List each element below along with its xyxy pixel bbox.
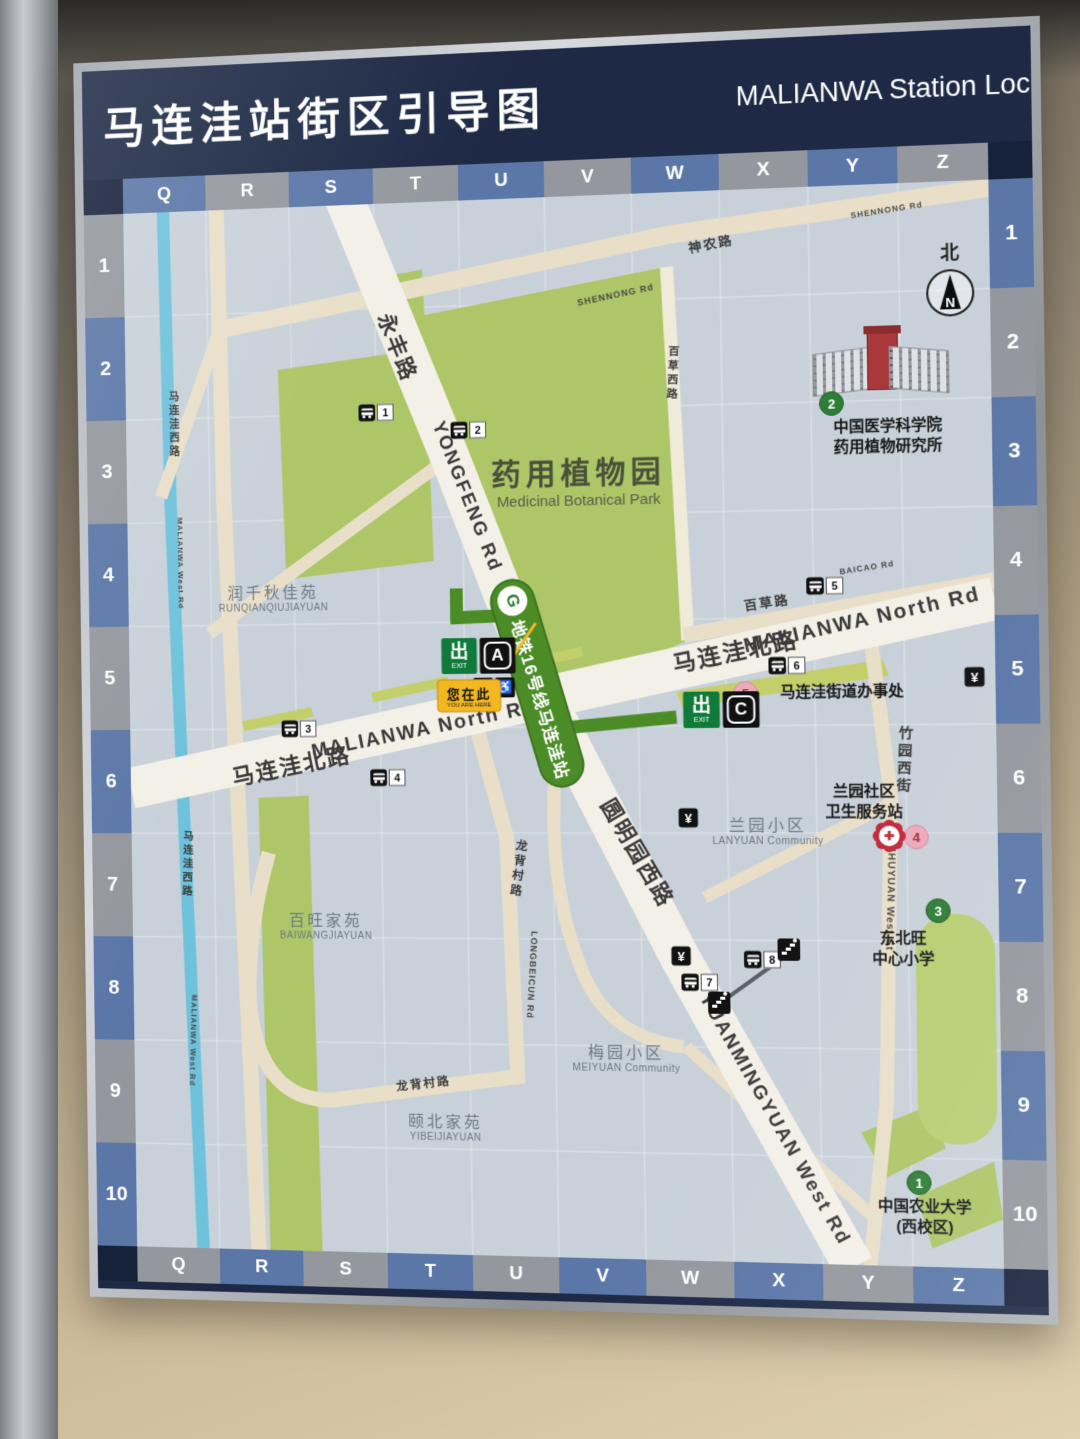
exit-letter-box: A <box>480 637 516 673</box>
poi-label-line: 药用植物研究所 <box>833 435 942 458</box>
bus-stop-icon: 8 <box>744 951 781 968</box>
exit-letter: C <box>727 695 756 724</box>
bus-icon <box>744 951 762 968</box>
bus-stop-icon: 1 <box>358 404 393 422</box>
poi-label: 马连洼街道办事处 <box>780 682 904 704</box>
road-label: 百草路 <box>742 589 790 615</box>
community-label: 兰园小区LANYUAN Community <box>712 811 824 847</box>
poi-label-line: 卫生服务站 <box>825 802 903 823</box>
grid-number-cell: 3 <box>87 420 128 524</box>
stairs-glyph <box>782 952 787 955</box>
poi-label: 兰园社区卫生服务站 <box>825 782 903 823</box>
road-label: MALIANWA West Rd <box>188 994 198 1086</box>
poi-label-line: 兰园社区 <box>825 782 903 803</box>
station-exit-a: 出EXITA▲▼♿ <box>441 637 515 674</box>
road-label: BAICAO Rd <box>839 559 895 577</box>
poi-number-marker: 4 <box>904 825 929 850</box>
beijing-subway-logo-icon: G <box>494 582 531 619</box>
road-label: YUANMINGYUAN West Rd <box>694 990 855 1250</box>
grid-number-cell: 9 <box>95 1039 136 1143</box>
poi-label: 中国农业大学(西校区) <box>878 1196 972 1240</box>
grid-letter-cell: Y <box>807 146 897 186</box>
station-platform-arm-west-end <box>450 588 463 622</box>
building-right-wing <box>889 346 950 393</box>
grid-letter-cell: V <box>544 158 631 198</box>
grid-letter-cell: X <box>734 1262 823 1301</box>
footbridge-icon <box>777 938 800 960</box>
map-overlay: 药用植物园 Medicinal Botanical Park G 地铁16号线 <box>123 180 1004 1269</box>
bus-stop-icon: 5 <box>806 577 843 595</box>
road-label: 百草西路 <box>663 345 681 402</box>
community-name-en: YIBEIJIAYUAN <box>408 1131 483 1143</box>
grid-number-cell: 6 <box>996 724 1042 833</box>
exit-sign: 出EXIT <box>441 638 477 674</box>
station-area-map-sign: 马连洼站街区引导图 MALIANWA Station Loca QRSTUVWX… <box>82 25 1049 1315</box>
steel-frame-edge <box>0 0 58 1439</box>
road-label: MALIANWA North Rd <box>310 696 539 764</box>
bus-stop-icon: 3 <box>282 720 317 737</box>
subway-logo-letter: G <box>501 592 524 610</box>
building-left-wing <box>812 346 872 397</box>
poi-label-line: 中国农业大学 <box>878 1196 972 1219</box>
sign-scene: 马连洼站街区引导图 MALIANWA Station Loca QRSTUVWX… <box>73 16 1058 1325</box>
north-indicator: 北 N <box>925 238 974 317</box>
community-name-cn: 百旺家苑 <box>280 906 373 930</box>
grid-letter-cell: Z <box>913 1266 1004 1305</box>
grid-letter-cell: Q <box>137 1246 220 1283</box>
road-label: SHENNONG Rd <box>576 282 654 308</box>
poi-label-line: (西校区) <box>878 1217 972 1240</box>
exit-en-text: EXIT <box>452 662 467 669</box>
sign-title-en: MALIANWA Station Loca <box>736 66 1047 112</box>
park-name-en: Medicinal Botanical Park <box>491 490 666 511</box>
community-name-en: BAIWANGJIAYUAN <box>280 930 372 941</box>
bank-icon: ¥ <box>671 946 690 965</box>
grid-letter-cell: Q <box>123 175 206 213</box>
grid-number-cell: 4 <box>993 505 1039 615</box>
you-are-here-cn: 您在此 <box>447 683 492 702</box>
bus-stop-number: 2 <box>469 421 486 438</box>
bus-stop-icon: 2 <box>450 421 486 439</box>
road-label: 神农路 <box>687 229 735 257</box>
bus-glyph <box>809 581 821 588</box>
grid-corner <box>988 141 1033 180</box>
grid-number-cell: 8 <box>999 942 1045 1052</box>
poi-label-line: 中心小学 <box>872 949 935 970</box>
bus-icon <box>370 769 387 786</box>
grid-number-cell: 9 <box>1001 1051 1047 1161</box>
station-exit-c: 出EXITC <box>683 691 760 728</box>
map-body: 12345678910 <box>84 178 1048 1270</box>
bus-icon <box>768 657 786 674</box>
exit-en-text: EXIT <box>694 716 710 723</box>
sign-title-cn: 马连洼站街区引导图 <box>103 73 548 156</box>
poi-label-line: 东北旺 <box>872 929 935 950</box>
community-label: 梅园小区MEIYUAN Community <box>572 1038 680 1075</box>
community-name-cn: 颐北家苑 <box>408 1107 483 1132</box>
road-label: 永丰路 <box>371 308 426 386</box>
community-name-en: RUNQIANQIUJIAYUAN <box>219 602 329 614</box>
road-label: 马连洼西路 <box>179 830 196 899</box>
grid-corner <box>1004 1269 1049 1307</box>
community-name-en: MEIYUAN Community <box>572 1062 680 1075</box>
bus-glyph <box>771 661 783 668</box>
bus-stop-number: 3 <box>300 720 317 737</box>
bus-stop-number: 7 <box>701 974 718 991</box>
grid-number-cell: 4 <box>88 523 129 627</box>
botanical-park-label: 药用植物园 Medicinal Botanical Park <box>491 446 666 511</box>
bus-stop-number: 6 <box>788 657 806 674</box>
community-name-cn: 兰园小区 <box>712 811 824 835</box>
road-label: SHENNONG Rd <box>850 200 923 221</box>
grid-number-cell: 10 <box>1002 1160 1048 1270</box>
bus-glyph <box>373 773 385 780</box>
compass-n-letter: N <box>945 295 955 311</box>
grid-number-cell: 2 <box>85 317 126 421</box>
grid-letter-cell: W <box>631 154 719 194</box>
grid-letter-cell: T <box>373 165 459 204</box>
community-name-en: LANYUAN Community <box>712 835 824 846</box>
poi-label: 东北旺中心小学 <box>872 929 935 971</box>
grid-number-cell: 5 <box>995 614 1041 724</box>
north-label-cn: 北 <box>925 238 973 266</box>
road-label: LONGBEICUN Rd <box>525 931 540 1019</box>
grid-number-cell: 7 <box>998 833 1044 942</box>
poi-label: 中国医学科学院药用植物研究所 <box>833 415 942 459</box>
grid-number-cell: 1 <box>84 214 125 318</box>
community-label: 颐北家苑YIBEIJIAYUAN <box>408 1107 483 1143</box>
bus-stop-number: 5 <box>826 577 844 595</box>
community-label: 百旺家苑BAIWANGJIAYUAN <box>280 906 373 941</box>
footbridge-icon <box>708 992 731 1014</box>
grid-number-cell: 8 <box>93 936 134 1040</box>
bus-glyph <box>361 408 373 415</box>
grid-letter-cell: V <box>559 1257 647 1295</box>
grid-letter-cell: X <box>719 150 808 190</box>
grid-letter-cell: Z <box>897 143 988 184</box>
compass-icon: N <box>926 268 975 317</box>
exit-letter-box: C <box>723 691 760 728</box>
grid-number-cell: 3 <box>991 396 1037 506</box>
you-are-here-marker: 您在此 YOU ARE HERE <box>437 679 501 712</box>
grid-corner <box>83 179 123 216</box>
poi-number-marker: 1 <box>906 1170 931 1195</box>
bus-stop-number: 1 <box>377 404 394 421</box>
bus-glyph <box>284 724 296 731</box>
road-label: 圆明园西路 <box>594 792 683 913</box>
grid-letter-cell: U <box>458 161 544 200</box>
exit-letter: A <box>484 641 512 669</box>
grid-letter-cell: S <box>303 1251 388 1289</box>
community-name-cn: 梅园小区 <box>572 1038 680 1064</box>
road-label: 龙背村路 <box>395 1072 452 1095</box>
grid-letter-cell: U <box>473 1255 560 1293</box>
bus-stop-number: 4 <box>389 769 406 786</box>
grid-letter-cell: R <box>220 1249 304 1287</box>
poi-number-marker: 2 <box>819 391 844 416</box>
bus-icon <box>450 422 467 439</box>
bus-icon <box>806 577 824 595</box>
grid-number-cell: 10 <box>96 1142 137 1246</box>
exit-sign: 出EXIT <box>683 691 720 728</box>
community-label: 润千秋佳苑RUNQIANQIUJIAYUAN <box>218 578 328 614</box>
sign-metal-frame: 马连洼站街区引导图 MALIANWA Station Loca QRSTUVWX… <box>73 16 1058 1325</box>
stairs-glyph <box>712 1005 717 1008</box>
bus-stop-icon: 6 <box>768 657 805 675</box>
grid-letter-cell: T <box>388 1253 474 1291</box>
you-are-here-en: YOU ARE HERE <box>447 702 491 708</box>
community-clinic-icon: ✚ <box>877 824 902 849</box>
grid-number-cell: 2 <box>990 287 1036 397</box>
bus-stop-icon: 4 <box>370 769 405 786</box>
park-name-cn: 药用植物园 <box>491 446 666 494</box>
grid-number-cell: 6 <box>91 730 132 833</box>
bus-icon <box>282 720 299 737</box>
poi-label-line: 马连洼街道办事处 <box>780 682 904 704</box>
bank-icon: ¥ <box>679 808 698 827</box>
bus-glyph <box>453 426 465 433</box>
map-canvas: 药用植物园 Medicinal Botanical Park G 地铁16号线 <box>123 180 1004 1269</box>
bus-stop-icon: 7 <box>681 974 718 991</box>
poi-number-marker: 3 <box>925 898 950 923</box>
bus-glyph <box>747 955 759 962</box>
community-name-cn: 润千秋佳苑 <box>218 578 328 603</box>
road-label: 马连洼西路 <box>165 390 181 459</box>
exit-cn-character: 出 <box>450 642 469 661</box>
bus-glyph <box>684 978 696 985</box>
exit-cn-character: 出 <box>692 696 712 715</box>
grid-corner <box>98 1245 138 1281</box>
grid-letter-cell: W <box>646 1260 735 1299</box>
grid-letter-cell: Y <box>823 1264 913 1303</box>
grid-number-cell: 1 <box>988 178 1034 289</box>
road-label: 龙背村路 <box>507 838 531 900</box>
photo-background: 马连洼站街区引导图 MALIANWA Station Loca QRSTUVWX… <box>0 0 1080 1439</box>
grid-letter-cell: R <box>205 172 289 211</box>
bank-icon: ¥ <box>964 667 984 687</box>
road-label: MALIANWA West Rd <box>175 518 185 610</box>
grid-number-cell: 5 <box>89 627 130 731</box>
grid-letter-cell: S <box>288 168 373 207</box>
grid-number-cell: 7 <box>92 833 133 936</box>
poi-label-line: 中国医学科学院 <box>833 415 942 438</box>
bus-icon <box>358 404 375 421</box>
bus-icon <box>681 974 698 991</box>
